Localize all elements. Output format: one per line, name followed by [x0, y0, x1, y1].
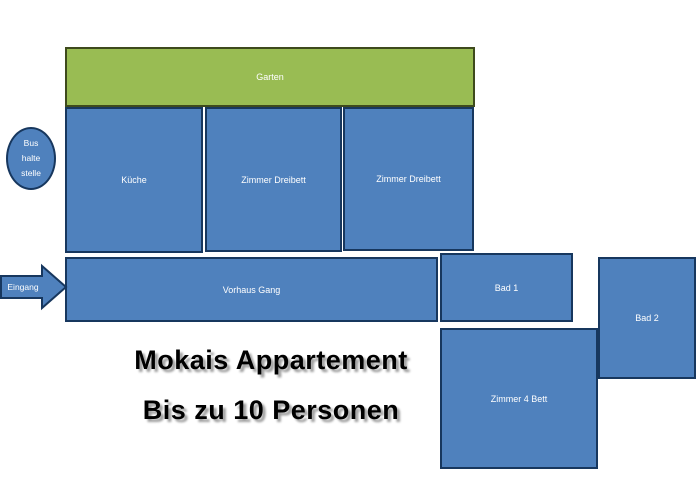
- room-zimmer-dreibett-2: Zimmer Dreibett: [343, 107, 474, 251]
- room-bad-1-label: Bad 1: [495, 283, 519, 293]
- room-zimmer-dreibett-1: Zimmer Dreibett: [205, 107, 342, 252]
- entrance-label: Eingang: [0, 276, 46, 298]
- room-bad-2: Bad 2: [598, 257, 696, 379]
- room-zimmer-dreibett-1-label: Zimmer Dreibett: [241, 175, 306, 185]
- room-vorhaus-gang: Vorhaus Gang: [65, 257, 438, 322]
- room-kueche-label: Küche: [121, 175, 147, 185]
- bus-stop-line-2: halte: [22, 151, 40, 166]
- room-garten-label: Garten: [256, 72, 284, 82]
- room-zimmer-4-bett: Zimmer 4 Bett: [440, 328, 598, 469]
- room-zimmer-dreibett-2-label: Zimmer Dreibett: [376, 174, 441, 184]
- bus-stop-line-3: stelle: [21, 166, 41, 181]
- room-vorhaus-gang-label: Vorhaus Gang: [223, 285, 281, 295]
- floor-plan: Garten Küche Zimmer Dreibett Zimmer Drei…: [0, 0, 700, 500]
- room-zimmer-4-bett-label: Zimmer 4 Bett: [491, 394, 548, 404]
- page-subtitle: Bis zu 10 Personen: [86, 395, 456, 426]
- bus-stop-line-1: Bus: [24, 136, 39, 151]
- page-title: Mokais Appartement: [86, 345, 456, 376]
- room-bad-2-label: Bad 2: [635, 313, 659, 323]
- room-kueche: Küche: [65, 107, 203, 253]
- room-bad-1: Bad 1: [440, 253, 573, 322]
- room-garten: Garten: [65, 47, 475, 107]
- bus-stop-ellipse: Bus halte stelle: [6, 127, 56, 190]
